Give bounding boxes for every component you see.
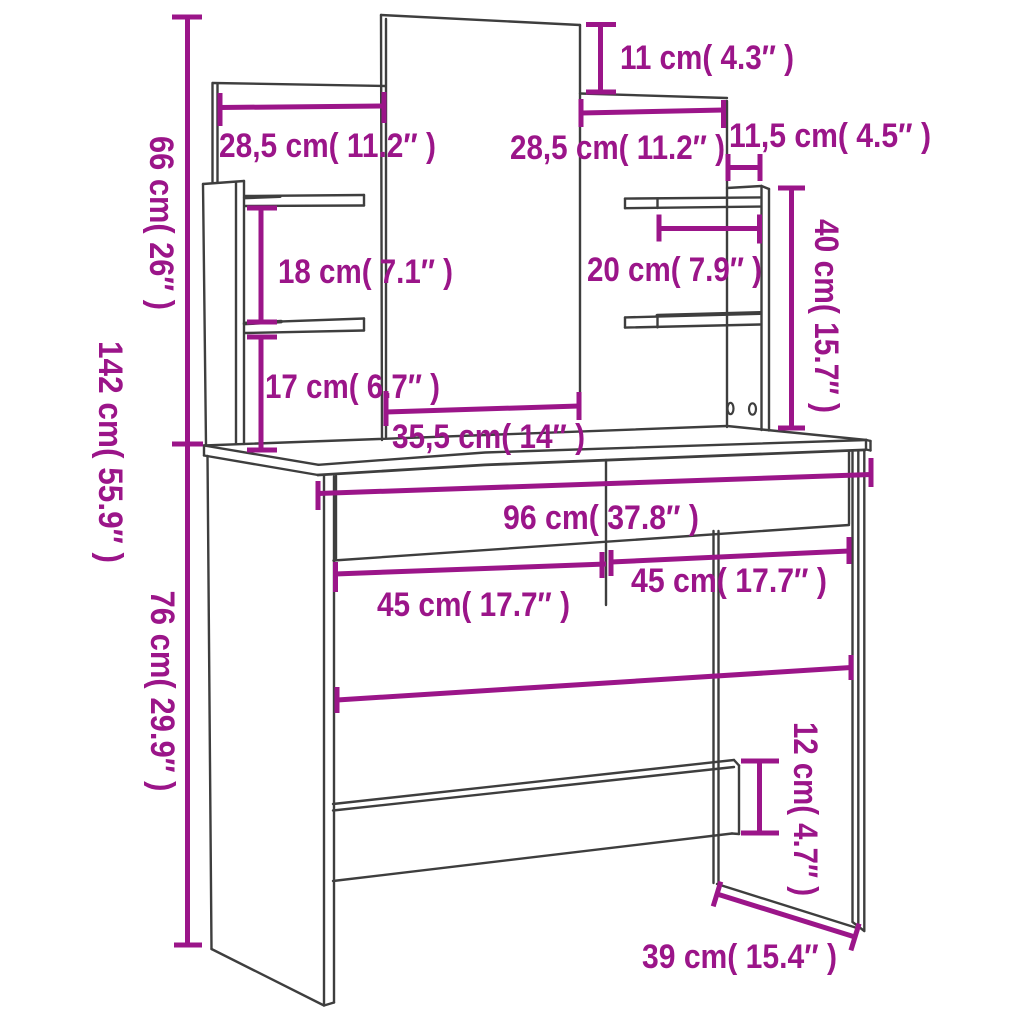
svg-text:28,5 cm( 11.2″ ): 28,5 cm( 11.2″ ) (219, 127, 436, 165)
svg-text:45 cm( 17.7″ ): 45 cm( 17.7″ ) (631, 562, 827, 600)
svg-text:76 cm( 29.9″ ): 76 cm( 29.9″ ) (143, 591, 181, 792)
svg-text:45 cm( 17.7″ ): 45 cm( 17.7″ ) (377, 586, 570, 624)
svg-text:11,5 cm( 4.5″ ): 11,5 cm( 4.5″ ) (729, 117, 931, 155)
svg-text:11 cm( 4.3″ ): 11 cm( 4.3″ ) (620, 39, 794, 77)
svg-text:12 cm( 4.7″ ): 12 cm( 4.7″ ) (786, 722, 824, 896)
svg-text:20 cm( 7.9″ ): 20 cm( 7.9″ ) (587, 251, 762, 289)
svg-text:40 cm( 15.7″ ): 40 cm( 15.7″ ) (807, 219, 845, 413)
svg-text:18 cm( 7.1″ ): 18 cm( 7.1″ ) (278, 253, 453, 291)
svg-text:17 cm( 6.7″ ): 17 cm( 6.7″ ) (265, 368, 440, 406)
svg-text:35,5 cm( 14″ ): 35,5 cm( 14″ ) (392, 418, 585, 456)
svg-text:39 cm( 15.4″ ): 39 cm( 15.4″ ) (642, 938, 837, 976)
svg-text:66 cm( 26″ ): 66 cm( 26″ ) (142, 136, 180, 310)
svg-text:28,5 cm( 11.2″ ): 28,5 cm( 11.2″ ) (510, 129, 725, 167)
svg-text:142 cm( 55.9″ ): 142 cm( 55.9″ ) (91, 341, 129, 563)
svg-text:96 cm( 37.8″ ): 96 cm( 37.8″ ) (503, 499, 699, 537)
